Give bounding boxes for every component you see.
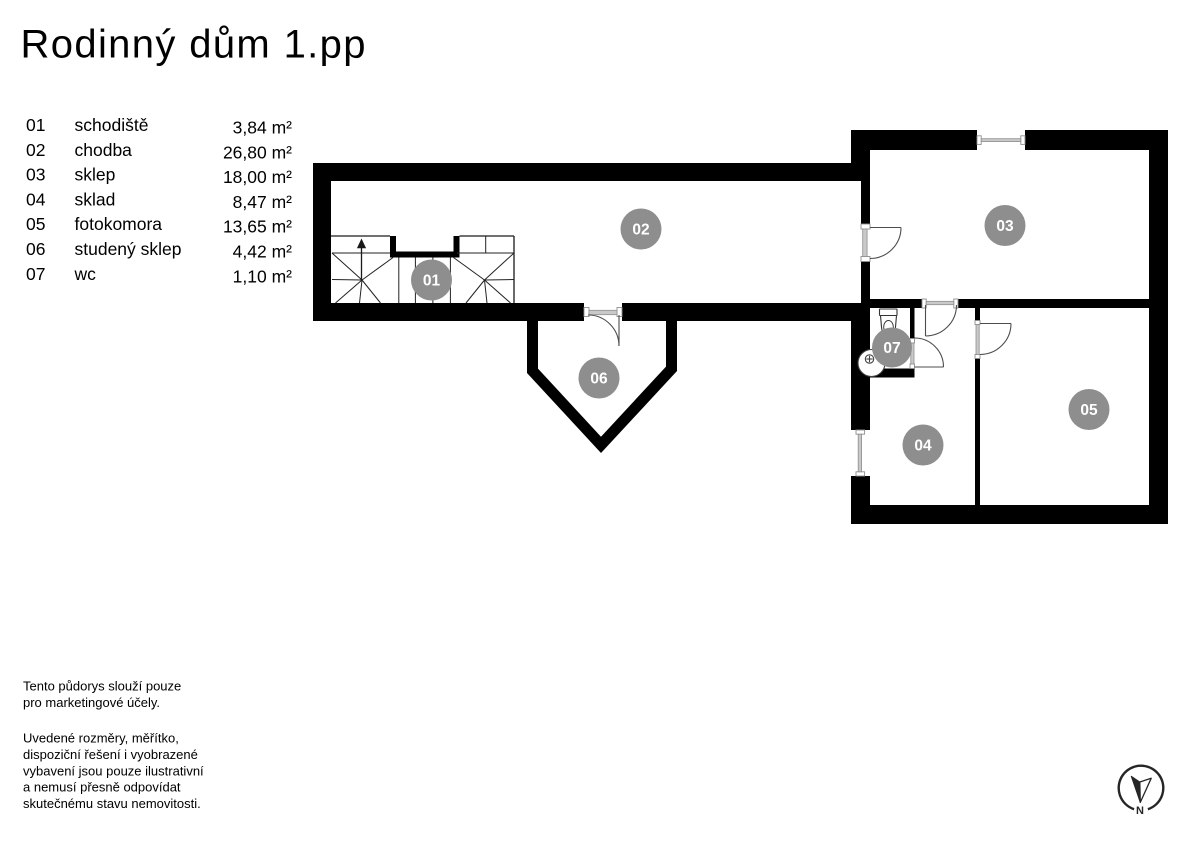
svg-text:02: 02	[632, 222, 649, 239]
svg-text:sklep: sklep	[75, 165, 116, 185]
svg-text:01: 01	[423, 273, 441, 290]
svg-text:chodba: chodba	[75, 140, 133, 160]
svg-text:pro marketingové účely.: pro marketingové účely.	[23, 695, 160, 710]
svg-text:01: 01	[26, 115, 45, 135]
svg-text:8,47 m²: 8,47 m²	[233, 192, 292, 212]
svg-text:05: 05	[26, 214, 45, 234]
svg-text:skutečnému stavu nemovitosti.: skutečnému stavu nemovitosti.	[23, 796, 201, 811]
svg-text:05: 05	[1080, 402, 1098, 419]
svg-text:dispoziční řešení i vyobrazené: dispoziční řešení i vyobrazené	[23, 747, 198, 762]
svg-text:13,65 m²: 13,65 m²	[223, 217, 292, 237]
svg-text:Rodinný dům 1.pp: Rodinný dům 1.pp	[21, 23, 366, 67]
svg-text:sklad: sklad	[75, 189, 116, 209]
svg-text:studený sklep: studený sklep	[75, 239, 182, 259]
svg-text:03: 03	[26, 165, 45, 185]
svg-text:06: 06	[590, 371, 608, 388]
svg-text:Tento půdorys slouží pouze: Tento půdorys slouží pouze	[23, 679, 181, 694]
svg-text:4,42 m²: 4,42 m²	[233, 242, 292, 262]
svg-text:a nemusí přesně odpovídat: a nemusí přesně odpovídat	[23, 780, 181, 795]
svg-text:vybavení jsou pouze ilustrativ: vybavení jsou pouze ilustrativní	[23, 763, 204, 778]
svg-text:26,80 m²: 26,80 m²	[223, 142, 292, 162]
svg-text:Uvedené rozměry, měřítko,: Uvedené rozměry, měřítko,	[23, 731, 179, 746]
svg-text:N: N	[1136, 805, 1144, 817]
svg-text:03: 03	[996, 218, 1014, 235]
svg-text:18,00 m²: 18,00 m²	[223, 167, 292, 187]
svg-text:3,84 m²: 3,84 m²	[233, 118, 292, 138]
svg-text:wc: wc	[74, 264, 97, 284]
svg-text:04: 04	[914, 438, 932, 455]
svg-text:fotokomora: fotokomora	[75, 214, 163, 234]
svg-text:06: 06	[26, 239, 45, 259]
svg-text:07: 07	[26, 264, 45, 284]
svg-text:schodiště: schodiště	[75, 115, 149, 135]
svg-text:04: 04	[26, 189, 46, 209]
svg-text:02: 02	[26, 140, 45, 160]
svg-text:07: 07	[883, 340, 900, 357]
svg-text:1,10 m²: 1,10 m²	[233, 266, 292, 286]
